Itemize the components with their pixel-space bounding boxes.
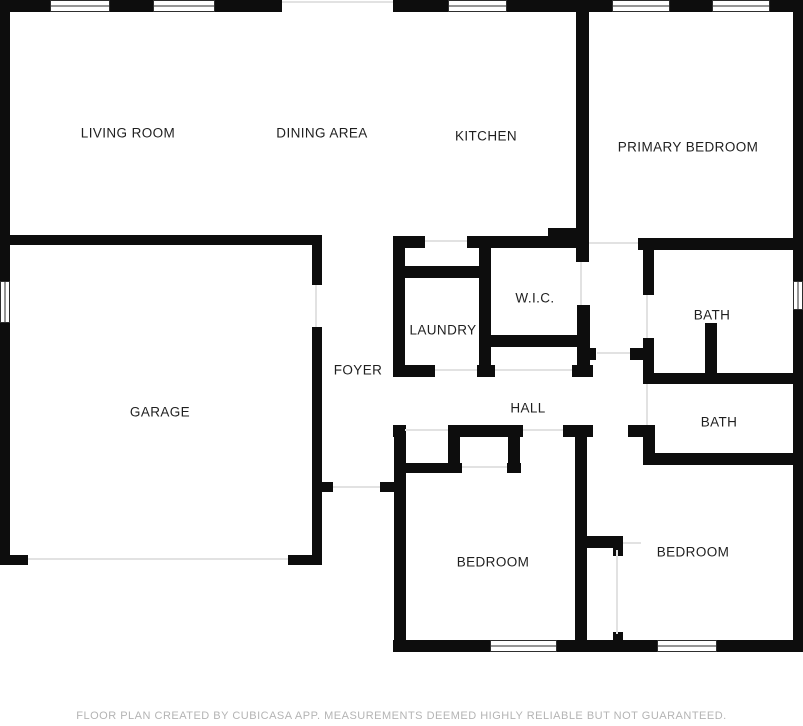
door-opening bbox=[616, 550, 618, 634]
door-opening bbox=[462, 466, 507, 468]
wall bbox=[717, 640, 803, 652]
door-opening bbox=[523, 429, 563, 431]
door-opening bbox=[425, 240, 467, 242]
door-opening bbox=[597, 352, 630, 354]
window bbox=[793, 281, 803, 310]
door-opening bbox=[646, 384, 648, 425]
door-opening bbox=[28, 558, 288, 560]
wall bbox=[630, 348, 644, 360]
room-label-wic: W.I.C. bbox=[515, 291, 554, 306]
room-label-hall: HALL bbox=[510, 401, 545, 416]
wall bbox=[793, 310, 803, 651]
wall bbox=[398, 463, 462, 473]
wall bbox=[393, 640, 490, 652]
wall bbox=[557, 640, 657, 652]
wall bbox=[288, 555, 322, 565]
wall bbox=[705, 323, 717, 373]
door-opening bbox=[589, 242, 638, 244]
wall bbox=[215, 0, 282, 12]
wall bbox=[548, 228, 576, 238]
wall bbox=[0, 323, 10, 565]
footer-disclaimer: FLOOR PLAN CREATED BY CUBICASA APP. MEAS… bbox=[0, 710, 803, 722]
wall bbox=[643, 373, 803, 384]
room-label-dining-area: DINING AREA bbox=[276, 126, 367, 141]
wall bbox=[638, 238, 803, 250]
wall bbox=[643, 338, 654, 373]
room-label-primary-bedroom: PRIMARY BEDROOM bbox=[618, 140, 759, 155]
wall bbox=[393, 266, 488, 278]
door-opening bbox=[315, 285, 317, 327]
wall bbox=[580, 536, 623, 548]
room-label-foyer: FOYER bbox=[334, 363, 383, 378]
window bbox=[153, 0, 215, 12]
wall bbox=[613, 632, 623, 642]
room-label-living-room: LIVING ROOM bbox=[81, 126, 175, 141]
room-label-bedroom-right: BEDROOM bbox=[657, 545, 730, 560]
wall bbox=[394, 425, 406, 652]
wall bbox=[393, 236, 405, 377]
window bbox=[50, 0, 110, 12]
door-opening bbox=[333, 486, 380, 488]
wall bbox=[572, 365, 593, 377]
door-opening bbox=[435, 369, 477, 371]
door-opening bbox=[282, 1, 393, 3]
window bbox=[448, 0, 507, 12]
wall bbox=[507, 463, 521, 473]
wall bbox=[312, 245, 322, 285]
window bbox=[712, 0, 770, 12]
floorplan-page: LIVING ROOMDINING AREAKITCHENPRIMARY BED… bbox=[0, 0, 803, 726]
wall bbox=[380, 482, 394, 492]
wall bbox=[643, 250, 654, 295]
window bbox=[0, 281, 10, 323]
wall bbox=[0, 555, 28, 565]
window bbox=[490, 640, 557, 652]
window bbox=[612, 0, 670, 12]
wall bbox=[393, 0, 448, 12]
wall bbox=[613, 548, 623, 556]
door-opening bbox=[405, 429, 448, 431]
wall bbox=[483, 335, 583, 347]
wall bbox=[0, 235, 322, 245]
wall bbox=[479, 245, 491, 365]
room-label-bath-lower: BATH bbox=[701, 415, 738, 430]
wall bbox=[576, 12, 589, 262]
room-label-laundry: LAUNDRY bbox=[409, 323, 476, 338]
room-label-kitchen: KITCHEN bbox=[455, 129, 517, 144]
room-label-bedroom-left: BEDROOM bbox=[457, 555, 530, 570]
wall bbox=[312, 327, 322, 565]
wall bbox=[643, 453, 803, 465]
window bbox=[657, 640, 717, 652]
wall bbox=[110, 0, 153, 12]
door-opening bbox=[580, 262, 582, 305]
wall bbox=[507, 0, 612, 12]
door-opening bbox=[495, 369, 572, 371]
room-label-garage: GARAGE bbox=[130, 405, 190, 420]
floorplan: LIVING ROOMDINING AREAKITCHENPRIMARY BED… bbox=[0, 0, 803, 726]
room-label-bath-upper: BATH bbox=[694, 308, 731, 323]
door-opening bbox=[646, 295, 648, 338]
door-opening bbox=[623, 542, 641, 544]
wall bbox=[322, 482, 333, 492]
wall bbox=[670, 0, 712, 12]
wall bbox=[393, 365, 435, 377]
wall bbox=[477, 365, 495, 377]
wall bbox=[583, 348, 596, 360]
